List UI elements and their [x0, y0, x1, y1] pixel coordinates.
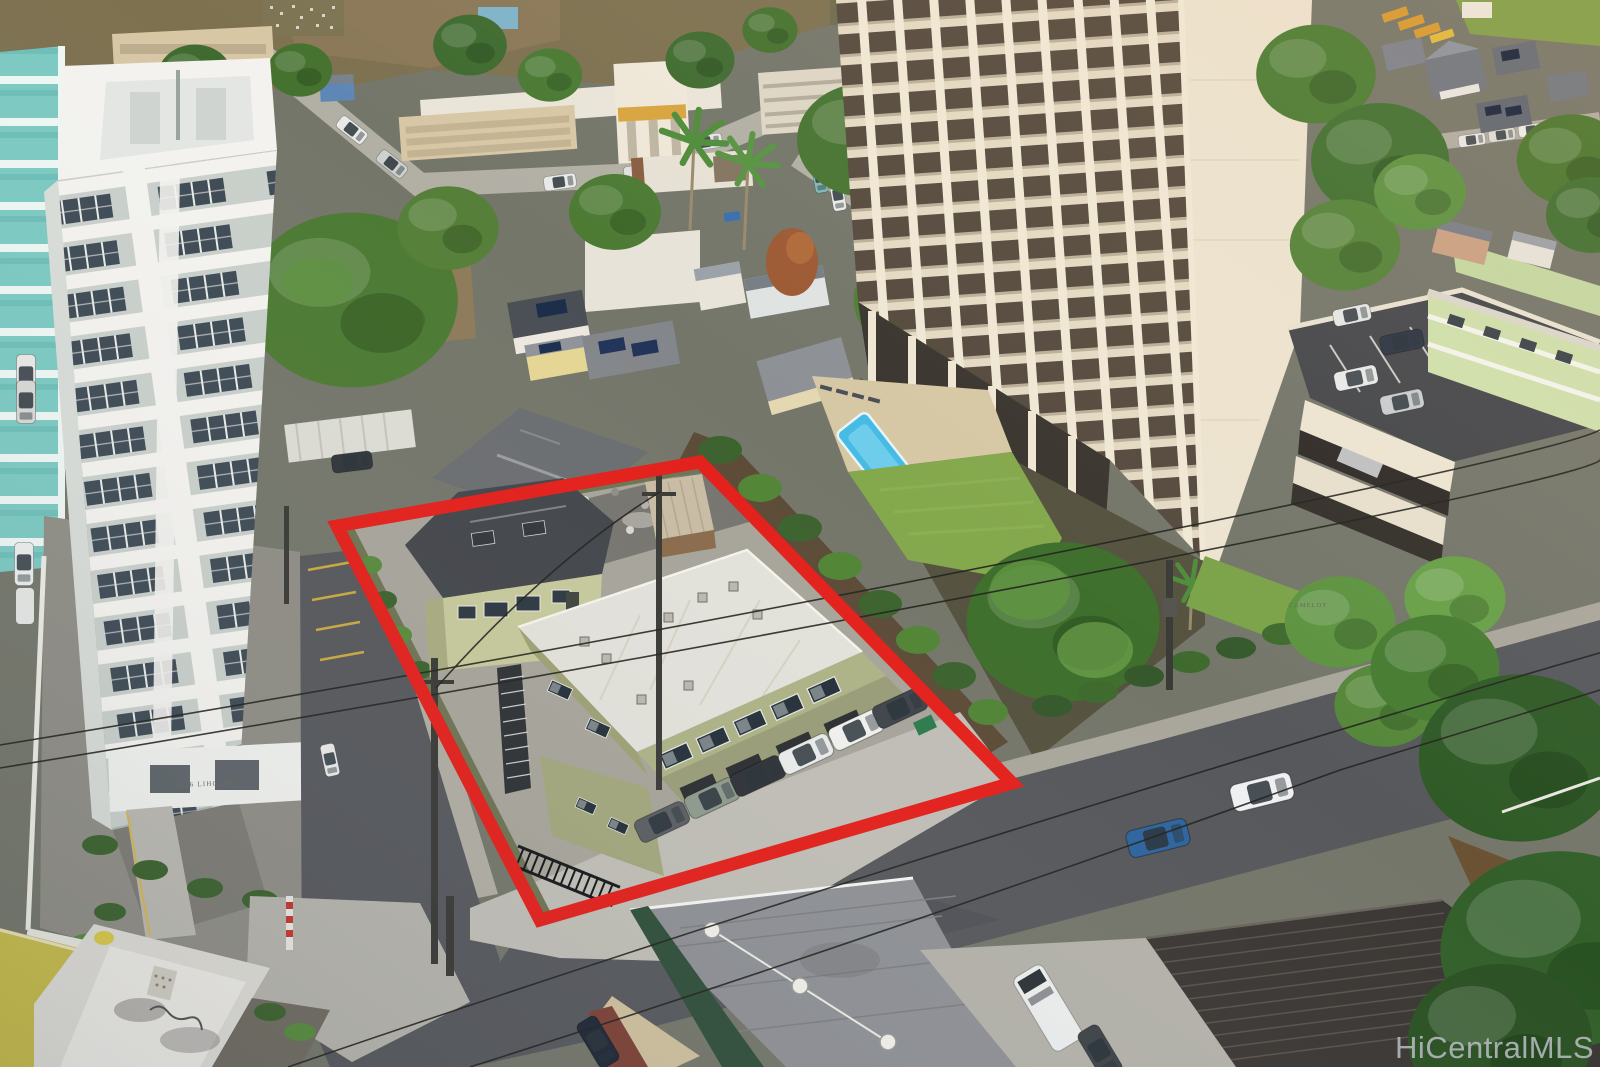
aerial-listing-photo: 1616 LIHOLIHO — [0, 0, 1600, 1067]
watermark: HiCentralMLS — [1395, 1030, 1594, 1065]
light-grade — [0, 0, 1600, 1067]
aerial-photo-canvas: 1616 LIHOLIHO — [0, 0, 1600, 1067]
camelot-sign: CAMELOT — [1289, 602, 1327, 609]
